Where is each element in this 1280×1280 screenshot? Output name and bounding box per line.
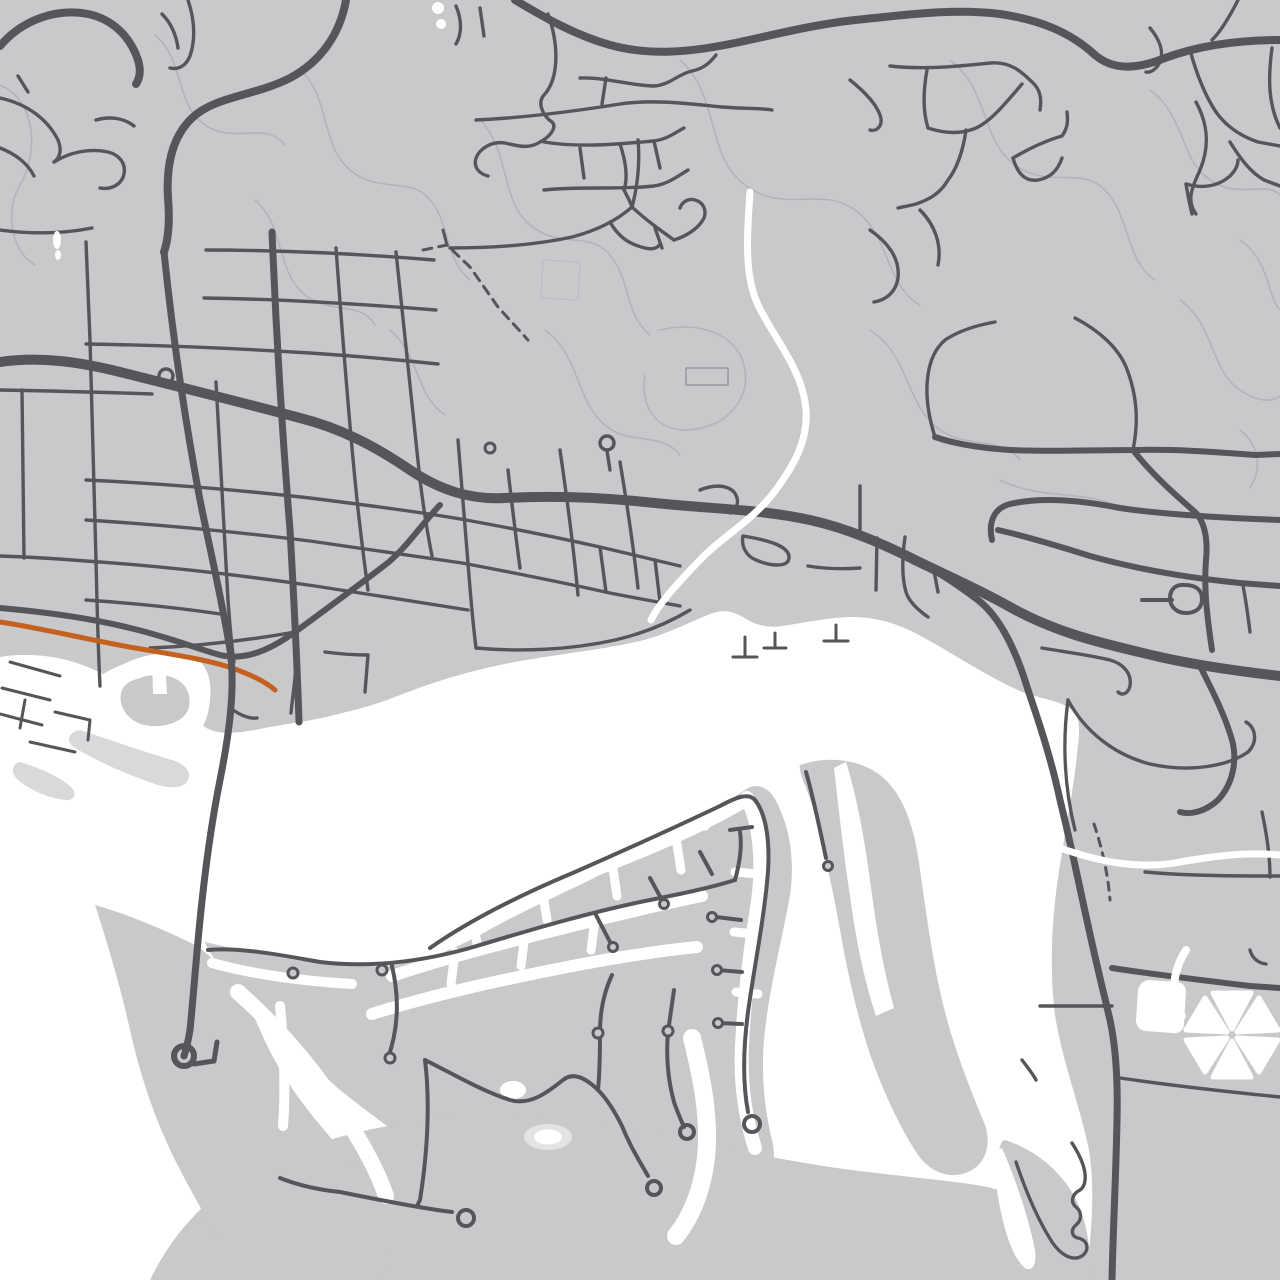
basemap-svg[interactable] [0,0,1280,1280]
pond [534,1130,562,1145]
canal-slip [612,862,617,896]
culdesac-dot [708,913,717,922]
building-square [1136,980,1186,1033]
culdesac-dot [714,1019,723,1028]
canal-slip [591,920,595,950]
canal-slip [734,932,756,934]
white-dot [55,250,61,260]
culdesac-dot [660,900,669,909]
canal-slip [451,952,455,984]
junction-ring [385,1053,395,1063]
canal-slip [567,845,572,875]
white-dot [436,19,446,29]
junction-ring [593,1028,603,1038]
lake-channel [152,656,167,694]
canal-slip [502,868,507,898]
culdesac-dot [713,966,722,975]
map-canvas[interactable] [0,0,1280,1280]
culdesac-dot [609,943,618,952]
culdesac-dot [824,862,833,871]
junction-ring [377,965,387,975]
junction-ring [663,1026,673,1036]
canal-slip [521,934,525,966]
canal-slip [472,912,477,944]
white-dot [53,231,61,249]
canal-slip [736,992,758,994]
canal-slip [676,838,681,870]
canal [280,1006,284,1126]
street [22,390,24,558]
junction-ring [288,968,298,978]
white-dot [432,2,444,14]
canal-slip [542,888,547,920]
